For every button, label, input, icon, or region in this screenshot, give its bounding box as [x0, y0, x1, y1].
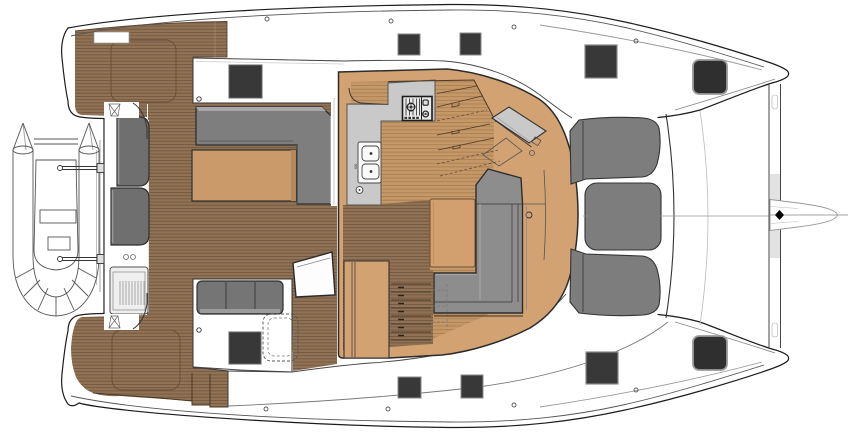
svg-text:600: 600	[354, 163, 358, 169]
